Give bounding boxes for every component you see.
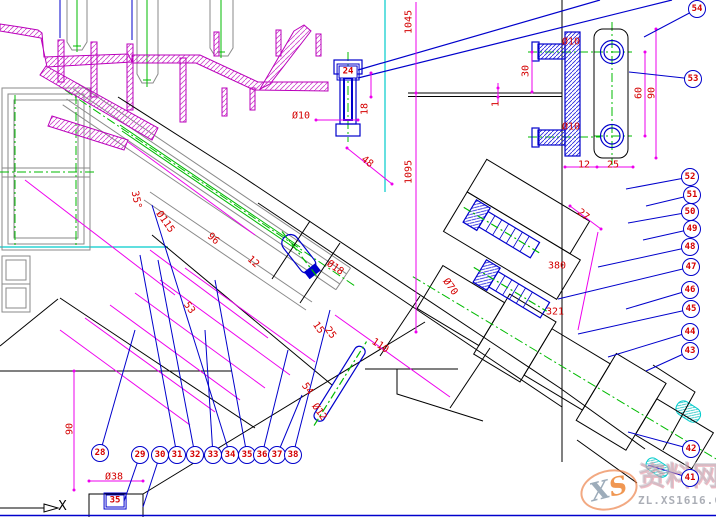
watermark: XS 资料网 ZL.XS1616.COM bbox=[578, 462, 716, 516]
balloon-leader-lines bbox=[100, 9, 697, 507]
x-axis-label: X bbox=[58, 499, 67, 514]
casting-section bbox=[0, 24, 328, 150]
watermark-site-url: ZL.XS1616.COM bbox=[638, 494, 716, 507]
blue-fasteners bbox=[0, 0, 716, 516]
drawing-geometry bbox=[0, 0, 716, 517]
cad-drawing-sheet: XS 资料网 ZL.XS1616.COM 10451095181Ø1030Ø10… bbox=[0, 0, 716, 517]
watermark-site-name: 资料网 bbox=[638, 462, 716, 492]
x-axis-arrow bbox=[0, 504, 58, 512]
watermark-logo: XS bbox=[576, 464, 642, 517]
